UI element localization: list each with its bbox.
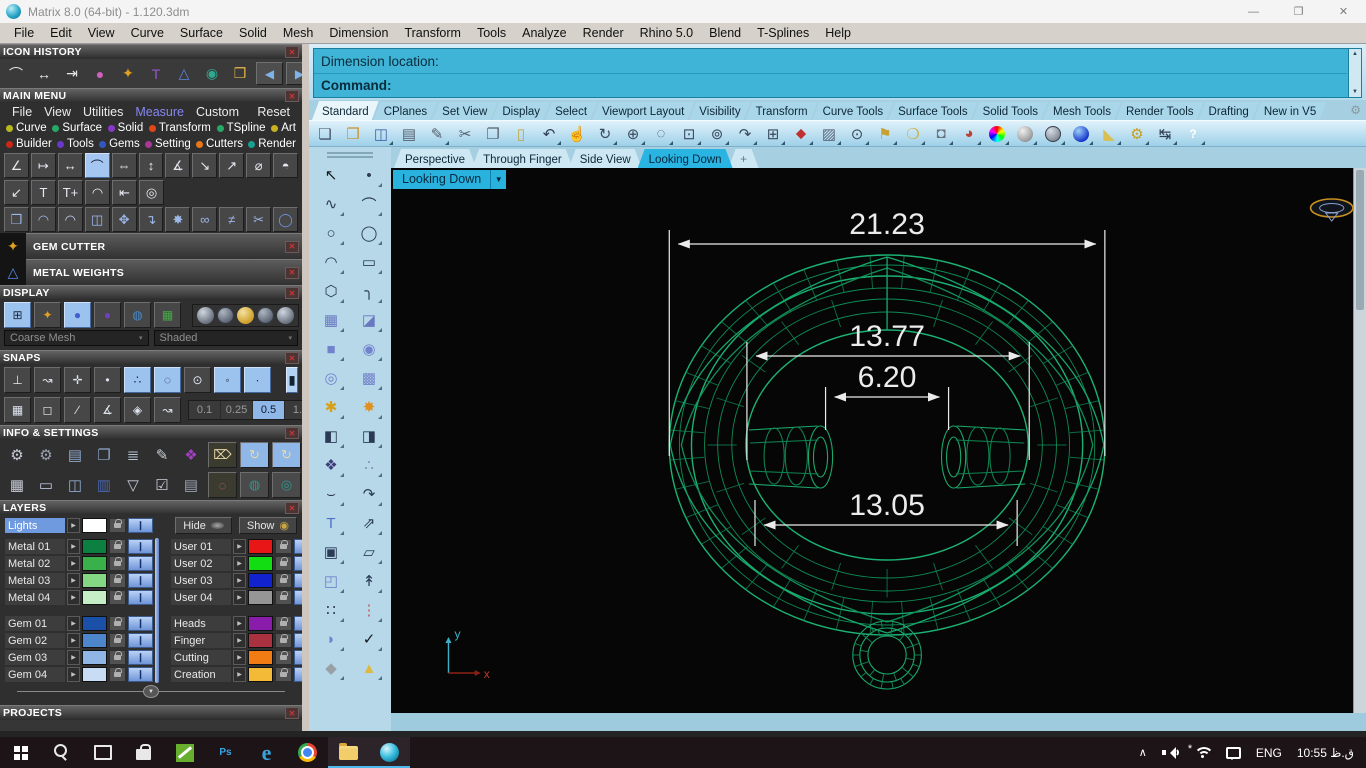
text-plus-button[interactable]: T+ [58,180,83,205]
funnel-icon[interactable]: ▽ [121,473,145,497]
main-menu-item[interactable]: Utilities [77,105,129,119]
ring-size-button[interactable]: ◎ [139,180,164,205]
layer-color-swatch[interactable] [248,539,273,554]
paste-button[interactable]: ▯ [510,123,532,145]
layer-color-swatch[interactable] [82,650,107,665]
layer-row[interactable]: User 02 ▶ ❙ [171,556,302,571]
layer-row[interactable]: Cutting ▶ ❙ [171,650,302,665]
render-sphere-button[interactable] [1070,123,1092,145]
layer-row[interactable]: Metal 02 ▶ ❙ [5,556,153,571]
display-mode-sphere-gold[interactable] [237,307,254,324]
history-back-button[interactable]: ◀ [256,62,283,85]
teal-ring2-button[interactable]: ◎ [272,472,301,498]
toolbar-tab[interactable]: Standard [312,101,379,120]
snap-near-button[interactable]: ◦ [214,367,241,393]
green-app-button[interactable] [164,737,205,768]
file-explorer-button[interactable] [328,737,369,768]
viewport-tab[interactable]: Side View [569,149,642,168]
loop-play-button[interactable]: ↻ [240,442,269,468]
toolbar-tab[interactable]: CPlanes [374,102,437,120]
layer-row[interactable]: User 04 ▶ ❙ [171,590,302,605]
grid-snap-button[interactable]: ▦ [4,397,31,423]
layer-color-swatch[interactable] [82,590,107,605]
hide-button[interactable]: Hide [175,517,232,534]
cap-tool-icon[interactable]: ◆ [319,656,343,680]
start-button[interactable] [0,737,41,768]
help-button[interactable]: ? [1182,123,1204,145]
layer-expand-button[interactable]: ▶ [67,518,80,533]
gem-cutter-panel[interactable]: ✦ GEM CUTTER ✕ [0,233,302,259]
close-icon[interactable]: ✕ [285,502,299,514]
toolbar-tab[interactable]: Transform [746,102,818,120]
snap-point-button[interactable]: • [94,367,121,393]
menu-item[interactable]: View [80,24,123,42]
close-icon[interactable]: ✕ [285,707,299,719]
planar-srf-icon[interactable]: ▱ [357,540,381,564]
layer-expand-button[interactable]: ▶ [67,539,80,554]
snap-mid-button[interactable]: ∴ [124,367,151,393]
gem-tool-icon[interactable]: ✱ [319,395,343,419]
category-toggle[interactable]: Tools [57,137,94,151]
metal-weights-icon[interactable]: △ [172,62,196,85]
notification-icon[interactable] [1226,747,1241,759]
bend-tool-icon[interactable]: ◗ [319,627,343,651]
arc-button[interactable]: ◠ [31,207,56,232]
ghosted-view-button[interactable]: ● [94,302,121,328]
blend-arc-icon[interactable]: ⌣ [319,482,343,506]
layout-green-button[interactable]: ▦ [154,302,181,328]
layer-expand-button[interactable]: ▶ [67,556,80,571]
layer-current-button[interactable]: ❙ [128,556,153,571]
rectangle-tool-icon[interactable]: ▭ [357,250,381,274]
ring-navigator-widget[interactable] [1311,199,1353,221]
viewport-title-dropdown[interactable]: Looking Down ▼ [393,170,506,189]
annotate-flag-button[interactable]: ⚑ [874,123,896,145]
chevron-down-icon[interactable]: ▼ [490,170,506,189]
layer-row[interactable]: Metal 04 ▶ ❙ [5,590,153,605]
display-mode-sphere-4[interactable] [257,307,274,324]
explode-button[interactable]: ✸ [165,207,190,232]
text-style-icon[interactable]: T [144,62,168,85]
render-car-button[interactable]: ⬥ [790,123,812,145]
mesh-quality-dropdown[interactable]: Coarse Mesh ▾ [4,330,149,346]
menu-item[interactable]: Transform [396,24,469,42]
layer-row[interactable]: Heads ▶ ❙ [171,616,302,631]
toolbar-tab[interactable]: Set View [432,102,497,120]
menu-item[interactable]: T-Splines [749,24,817,42]
undo-view-button[interactable]: ↷ [734,123,756,145]
circle-center-button[interactable]: ⊙ [846,123,868,145]
layer-lock-button[interactable] [275,556,292,571]
show-button[interactable]: Show◉ [239,517,297,534]
category-toggle[interactable]: Surface [52,121,102,135]
looking-down-viewport[interactable]: Looking Down ▼ [391,168,1366,713]
store-button[interactable] [123,737,164,768]
wire-cube-icon[interactable]: ◫ [63,473,87,497]
close-icon[interactable]: ✕ [285,352,299,364]
shaded-view-button[interactable]: ● [64,302,91,328]
toolbar-tab[interactable]: Solid Tools [973,102,1048,120]
grid-value-button[interactable]: 0.5 [253,401,285,419]
layer-expand-button[interactable]: ▶ [233,650,246,665]
earth-view-button[interactable]: ◍ [124,302,151,328]
chrome-button[interactable] [287,737,328,768]
history-forward-button[interactable]: ▶ [286,62,302,85]
display-mode-sphere-1[interactable] [197,307,214,324]
undo-button[interactable]: ↶ [538,123,560,145]
layer-row[interactable]: Metal 03 ▶ ❙ [5,573,153,588]
layer-lock-button[interactable] [275,590,292,605]
grid-value-button[interactable]: 1.0 [285,401,302,419]
category-toggle[interactable]: TSpline [217,121,266,135]
layer-lock-button[interactable] [109,650,126,665]
layer-expand-button[interactable]: ▶ [233,633,246,648]
box-tool-icon[interactable]: ■ [319,337,343,361]
layer-expand-button[interactable]: ▶ [67,650,80,665]
gear-icon[interactable]: ⚙ [1350,103,1361,117]
layer-expand-button[interactable]: ▶ [233,573,246,588]
scale-tool-icon[interactable]: ⇗ [357,511,381,535]
volume-icon[interactable] [1162,746,1179,759]
layer-expand-button[interactable]: ▶ [233,667,246,682]
zoom-window-button[interactable]: ⊡ [678,123,700,145]
viewport-tab[interactable]: Looking Down [638,149,733,168]
edit-pencil-icon[interactable]: ✎ [150,443,174,467]
loop-record-button[interactable]: ↻ [272,442,301,468]
measure-length-button[interactable]: ↔ [58,153,83,178]
server-icon[interactable]: ▤ [179,473,203,497]
book-icon[interactable]: ▥ [92,473,116,497]
measure-point-button[interactable]: ↘ [192,153,217,178]
circle-tool-icon[interactable]: ○ [319,221,343,245]
toolbar-tab[interactable]: Mesh Tools [1043,102,1121,120]
close-button[interactable]: ✕ [1321,0,1366,23]
table-icon[interactable]: ▤ [63,443,87,467]
edit-notes-button[interactable]: ✎ [426,123,448,145]
measure-span-button[interactable]: ⇔ [112,153,137,178]
sweep-button[interactable]: ⌦ [208,442,237,468]
layer-current-button[interactable]: ❙ [128,539,153,554]
layer-current-button[interactable]: ❙ [294,616,302,631]
task-view-button[interactable] [82,737,123,768]
close-icon[interactable]: ✕ [285,46,299,58]
layer-current-button[interactable]: ❙ [128,518,153,533]
main-menu-item[interactable]: Custom [190,105,245,119]
wrench-icon[interactable]: ⚙ [34,443,58,467]
category-toggle[interactable]: Builder [6,137,52,151]
grid-value-button[interactable]: 0.25 [221,401,253,419]
layer-row[interactable]: User 01 ▶ ❙ [171,539,302,554]
layer-row[interactable]: Finger ▶ ❙ [171,633,302,648]
lock-button[interactable]: ◘ [930,123,952,145]
layer-lock-button[interactable] [109,556,126,571]
copy-button[interactable]: ❐ [482,123,504,145]
add-viewport-tab-button[interactable]: + [729,149,759,168]
layer-lock-button[interactable] [109,539,126,554]
category-toggle[interactable]: Transform [149,121,211,135]
layer-current-button[interactable]: ❙ [128,590,153,605]
shaded-sphere-button[interactable] [1014,123,1036,145]
layer-lock-button[interactable] [275,667,292,682]
center-snap-button[interactable]: ◈ [124,397,151,423]
menu-item[interactable]: Rhino 5.0 [632,24,702,42]
measure-radius-button[interactable]: ⌒ [85,153,110,178]
trim-right-icon[interactable]: ◨ [357,424,381,448]
grid-axes-button[interactable]: ⊞ [4,302,31,328]
menu-item[interactable]: Curve [123,24,172,42]
circle-blue-button[interactable]: ◯ [273,207,298,232]
layer-lock-button[interactable] [275,633,292,648]
cube-snap-button[interactable]: ◻ [34,397,61,423]
layer-color-swatch[interactable] [248,590,273,605]
rotate-view-button[interactable]: ↻ [594,123,616,145]
tray-expand-icon[interactable]: ∧ [1139,746,1147,759]
layer-color-swatch[interactable] [82,539,107,554]
gem-cutter-icon[interactable]: ✦ [116,62,140,85]
layer-color-swatch[interactable] [82,573,107,588]
menu-item[interactable]: Dimension [321,24,396,42]
menu-item[interactable]: File [6,24,42,42]
layer-row[interactable]: Gem 04 ▶ ❙ [5,667,153,682]
layer-current-button[interactable]: ❙ [294,573,302,588]
measure-distance-icon[interactable]: ⇥ [60,62,84,85]
metal-weights-panel[interactable]: △ METAL WEIGHTS ✕ [0,259,302,285]
measure-length-icon[interactable]: ↔ [32,62,56,85]
layer-expand-button[interactable]: ▶ [233,616,246,631]
layer-row[interactable]: Gem 02 ▶ ❙ [5,633,153,648]
print-button[interactable]: ▤ [398,123,420,145]
layer-lock-button[interactable] [275,650,292,665]
viewport-tab[interactable]: Perspective [394,149,476,168]
snap-center-button[interactable]: ⊙ [184,367,211,393]
close-icon[interactable]: ✕ [285,241,299,253]
layer-lights[interactable]: Lights [5,518,65,533]
command-scrollbar[interactable]: ▲ ▼ [1348,49,1361,97]
photoshop-button[interactable]: Ps [205,737,246,768]
snap-circle-button[interactable]: ◌ [154,367,181,393]
layer-lock-button[interactable] [109,633,126,648]
toolbar-tab[interactable]: New in V5 [1254,102,1326,120]
measure-distance-button[interactable]: ↦ [31,153,56,178]
shade-mode-dropdown[interactable]: Shaded ▾ [154,330,299,346]
pyramid-tool-icon[interactable]: ▲ [357,656,381,680]
zoom-in-button[interactable]: ⊕ [622,123,644,145]
layer-expand-button[interactable]: ▶ [67,590,80,605]
close-icon[interactable]: ✕ [285,287,299,299]
layer-color-swatch[interactable] [248,616,273,631]
layer-current-button[interactable]: ❙ [128,616,153,631]
move-button[interactable]: ✥ [112,207,137,232]
options-gear-button[interactable]: ⚙ [1126,123,1148,145]
text-button[interactable]: T [31,180,56,205]
monitor-icon[interactable]: ▭ [34,473,58,497]
extrude-up-icon[interactable]: ↟ [357,569,381,593]
layer-lock-button[interactable] [109,573,126,588]
toolbar-tab[interactable]: Display [492,102,550,120]
pan-button[interactable]: ☝ [566,123,588,145]
layer-color-swatch[interactable] [82,616,107,631]
tangent-line-button[interactable]: ↝ [154,397,181,423]
purple-cube-icon[interactable]: ❖ [179,443,203,467]
curve-freeform-icon[interactable]: ∿ [319,192,343,216]
layer-current-button[interactable]: ❙ [128,650,153,665]
toolbar-tab[interactable]: Surface Tools [888,102,977,120]
layer-expand-button[interactable]: ▶ [67,616,80,631]
layer-color-swatch[interactable] [82,518,107,533]
mirror-button[interactable]: ◫ [85,207,110,232]
dimension-tool-button[interactable]: ↹ [1154,123,1176,145]
scroll-icon[interactable]: ≣ [121,443,145,467]
menu-item[interactable]: Analyze [514,24,574,42]
render-mesh-button[interactable]: ▨ [818,123,840,145]
array-grid-icon[interactable]: ∷ [319,598,343,622]
edge-button[interactable]: e [246,737,287,768]
leader-button[interactable]: ↙ [4,180,29,205]
mesh-box-icon[interactable]: ▩ [357,366,381,390]
layer-current-button[interactable]: ❙ [294,590,302,605]
layer-current-button[interactable]: ❙ [294,650,302,665]
layer-color-swatch[interactable] [82,633,107,648]
menu-item[interactable]: Blend [701,24,749,42]
close-icon[interactable]: ✕ [285,427,299,439]
category-toggle[interactable]: Solid [108,121,144,135]
command-input-line[interactable]: Command: [314,73,1347,97]
layer-row[interactable]: Metal 01 ▶ ❙ [5,539,153,554]
layer-current-button[interactable]: ❙ [294,539,302,554]
explode-tool-icon[interactable]: ✸ [357,395,381,419]
layer-expand-button[interactable]: ▶ [233,590,246,605]
toolbar-grip[interactable] [327,152,373,158]
render-preview-icon[interactable]: ◉ [200,62,224,85]
boolean-union-icon[interactable]: ❖ [319,453,343,477]
layer-color-swatch[interactable] [248,650,273,665]
layer-current-button[interactable]: ❙ [294,667,302,682]
line-snap-button[interactable]: ∕ [64,397,91,423]
toolbar-tab[interactable]: Viewport Layout [592,102,694,120]
category-toggle[interactable]: Cutters [196,137,243,151]
cut-button[interactable]: ✂ [454,123,476,145]
layer-current-button[interactable]: ❙ [128,573,153,588]
layer-lock-button[interactable] [109,616,126,631]
tiles-icon[interactable]: ▦ [5,473,29,497]
layer-lock-button[interactable] [109,667,126,682]
layer-expand-button[interactable]: ▶ [67,633,80,648]
scroll-up-icon[interactable]: ▲ [1352,51,1358,57]
main-menu-item[interactable]: Measure [129,105,190,119]
toolbar-tab[interactable]: Curve Tools [813,102,894,120]
viewport-tab[interactable]: Through Finger [472,149,573,168]
arc-dashed-button[interactable]: ◠ [58,207,83,232]
command-prompt-line[interactable]: Dimension location: [314,49,1347,73]
ghosted-sphere-button[interactable] [1042,123,1064,145]
menu-item[interactable]: Mesh [275,24,322,42]
history-cubes-button[interactable]: ❒ [4,207,29,232]
pink-ring-button[interactable]: ◌ [208,472,237,498]
link-button[interactable]: ∞ [192,207,217,232]
close-icon[interactable]: ✕ [285,90,299,102]
check-dashed-icon[interactable]: ☑ [150,473,174,497]
layer-color-swatch[interactable] [82,556,107,571]
language-indicator[interactable]: ENG [1256,746,1282,760]
angle45-snap-button[interactable]: ∡ [94,397,121,423]
notes-icon[interactable]: ❐ [92,443,116,467]
surface-patch-icon[interactable]: ◪ [357,308,381,332]
trim-left-icon[interactable]: ◧ [319,424,343,448]
spotlight-button[interactable]: ◣ [1098,123,1120,145]
collapse-button[interactable]: ▼ [143,685,159,698]
wifi-icon[interactable]: * [1194,747,1211,759]
color-wheel-button[interactable] [986,123,1008,145]
layer-color-swatch[interactable] [248,633,273,648]
measure-vertical-button[interactable]: ↕ [139,153,164,178]
layer-row[interactable]: Creation ▶ ❙ [171,667,302,682]
layer-expand-button[interactable]: ▶ [233,556,246,571]
measure-diagonal-button[interactable]: ↗ [219,153,244,178]
layer-row[interactable]: Gem 03 ▶ ❙ [5,650,153,665]
display-mode-sphere-5[interactable] [277,307,294,324]
scrollbar-thumb[interactable] [1356,170,1364,310]
layer-current-button[interactable]: ❙ [128,667,153,682]
toolbar-tab[interactable]: Visibility [689,102,750,120]
zoom-selected-button[interactable]: ⊚ [706,123,728,145]
menu-item[interactable]: Render [575,24,632,42]
layer-expand-button[interactable]: ▶ [233,539,246,554]
open-folder-icon[interactable]: ❒ [228,62,252,85]
measure-radius-icon[interactable]: ⌒ [4,62,28,85]
array-linear-icon[interactable]: ⋮ [357,598,381,622]
layer-row[interactable]: User 03 ▶ ❙ [171,573,302,588]
search-button[interactable] [41,737,82,768]
toolbar-tab[interactable]: Render Tools [1116,102,1204,120]
main-menu-item[interactable]: File [6,105,38,119]
layer-color-swatch[interactable] [248,573,273,588]
wedge-button[interactable]: ◕ [958,123,980,145]
minimize-button[interactable]: — [1231,0,1276,23]
category-toggle[interactable]: Art [271,121,296,135]
viewport-layout-button[interactable]: ⊞ [762,123,784,145]
menu-item[interactable]: Surface [172,24,231,42]
layer-lock-button[interactable] [109,518,126,533]
arc-tool-icon[interactable]: ◠ [319,250,343,274]
polygon-tool-icon[interactable]: ⬡ [319,279,343,303]
new-file-button[interactable]: ❏ [314,123,336,145]
cube-face-icon[interactable]: ◰ [319,569,343,593]
measure-radius2-button[interactable]: ◓ [273,153,298,178]
menu-item[interactable]: Solid [231,24,275,42]
fillet-corner-icon[interactable]: ╮ [357,279,381,303]
layer-lock-button[interactable] [275,616,292,631]
arc-length-button[interactable]: ◠ [85,180,110,205]
restore-button[interactable]: ❐ [1276,0,1321,23]
scroll-down-icon[interactable]: ▼ [1352,89,1358,95]
category-toggle[interactable]: Render [248,137,296,151]
dim-small-button[interactable]: ⇤ [112,180,137,205]
category-toggle[interactable]: Curve [6,121,47,135]
toolbar-tab[interactable]: Select [545,102,597,120]
save-button[interactable]: ◫ [370,123,392,145]
layer-row[interactable]: Gem 01 ▶ ❙ [5,616,153,631]
layer-current-button[interactable]: ❙ [294,556,302,571]
layer-expand-button[interactable]: ▶ [67,573,80,588]
layer-color-swatch[interactable] [248,556,273,571]
matrix-app-button[interactable] [369,737,410,768]
category-toggle[interactable]: Gems [99,137,140,151]
menu-item[interactable]: Tools [469,24,514,42]
text-tool-icon[interactable]: T [319,511,343,535]
measure-angle2-button[interactable]: ∡ [165,153,190,178]
menu-item[interactable]: Help [817,24,859,42]
check-tool-icon[interactable]: ✓ [357,627,381,651]
